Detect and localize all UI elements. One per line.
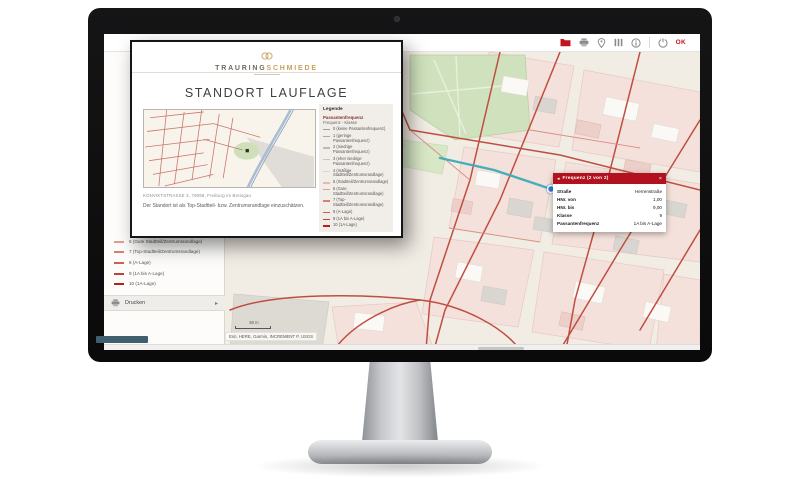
webcam-dot <box>394 16 400 22</box>
info-icon[interactable] <box>631 38 641 48</box>
legend-item: 0 (keine Passantenfrequenz) <box>323 127 389 132</box>
wedding-rings-icon <box>260 52 274 60</box>
popup-row: HNr. von 1,00 <box>557 195 662 203</box>
popup-row-label: Klasse <box>557 213 572 218</box>
location-pin-icon[interactable] <box>597 38 606 48</box>
popup-row: Straße Herrenstraße <box>557 187 662 195</box>
report-map-caption: KONVIKTSTRASSE 3, 79098, Freiburg im Bre… <box>143 193 323 198</box>
legend-label: 8 (A-Lage) <box>333 210 352 215</box>
map-attribution: Esri, HERE, Garmin, INCREMENT P, USGS <box>225 332 317 341</box>
legend-swatch <box>323 171 330 172</box>
legend-item: 7 (Top-Stadtteil/Zentrumsrandlage) <box>104 247 225 258</box>
legend-swatch <box>323 200 330 201</box>
brand-name-right: SCHMIEDE <box>266 65 317 72</box>
legend-label: 9 (1A bis A-Lage) <box>333 217 364 222</box>
brand-logo: TRAURINGSCHMIEDE <box>132 47 401 75</box>
legend-label: 2 (niedrige Passantenfrequenz) <box>333 145 389 155</box>
report-legend: Legende Passantenfrequenz Frequenz - Kla… <box>319 104 393 232</box>
power-icon[interactable] <box>658 38 668 48</box>
sidebar-legend-list: 6 (Gute Stadtteil/Zentrumsrandlage) 7 (T… <box>104 236 225 290</box>
legend-label: 4 (mäßige Stadtteil/Zentrumsrandlage) <box>333 169 389 179</box>
popup-header: ◂ Frequenz (2 von 2) × <box>553 173 666 184</box>
legend-item: 5 (Stadtteil/Zentrumsrandlage) <box>323 180 389 185</box>
legend-label: 9 (1A bis A-Lage) <box>129 271 164 277</box>
legend-label: 8 (A-Lage) <box>129 260 151 266</box>
page: 50 m Esri, HERE, Garmin, INCREMENT P, US… <box>0 0 800 484</box>
legend-item: 3 (eher niedrige Passantenfrequenz) <box>323 157 389 167</box>
legend-item: 9 (1A bis A-Lage) <box>104 268 225 279</box>
legend-label: 0 (keine Passantenfrequenz) <box>333 127 385 132</box>
legend-label: 7 (Top-Stadtteil/Zentrumsrandlage) <box>129 249 200 255</box>
print-label: Drucken <box>125 300 145 306</box>
legend-item: 8 (A-Lage) <box>104 257 225 268</box>
legend-item: 10 (1A-Lage) <box>104 279 225 290</box>
scrollbar-corner <box>96 336 148 343</box>
brand-rule <box>254 74 280 75</box>
legend-swatch <box>323 182 330 183</box>
chevron-right-icon[interactable]: ▸ <box>215 300 218 307</box>
legend-title: Legende <box>323 107 389 112</box>
report-minimap <box>143 109 316 188</box>
printer-icon <box>111 299 120 307</box>
minimap-marker <box>246 149 249 152</box>
popup-row-value: Herrenstraße <box>635 189 662 194</box>
popup-row-value: 1,00 <box>653 197 662 202</box>
monitor-stand-neck <box>362 362 438 442</box>
popup-row-label: Straße <box>557 189 571 194</box>
legend-item: 9 (1A bis A-Lage) <box>323 217 389 222</box>
legend-swatch <box>323 147 330 148</box>
popup-row-value: 9 <box>659 213 662 218</box>
legend-item: 10 (1A-Lage) <box>323 223 389 228</box>
legend-swatch <box>323 212 330 213</box>
feature-popup: ◂ Frequenz (2 von 2) × Straße Herrenstra… <box>553 173 666 232</box>
layers-icon[interactable] <box>614 38 623 47</box>
legend-label: 5 (Stadtteil/Zentrumsrandlage) <box>333 180 388 185</box>
report-title: STANDORT LAUFLAGE <box>132 86 401 100</box>
legend-label: 6 (Gute Stadtteil/Zentrumsrandlage) <box>333 187 389 197</box>
popup-close-icon[interactable]: × <box>659 176 662 182</box>
popup-row-label: HNr. bis <box>557 205 574 210</box>
brand-name-left: TRAURING <box>215 65 266 72</box>
print-icon[interactable] <box>579 38 589 47</box>
legend-label: 3 (eher niedrige Passantenfrequenz) <box>333 157 389 167</box>
popup-row-value: 1A bis A-Lage <box>634 221 662 226</box>
legend-item: 7 (Top-Stadtteil/Zentrumsrandlage) <box>323 198 389 208</box>
map-scalebar: 50 m <box>232 320 276 329</box>
legend-swatch <box>114 251 124 253</box>
legend-swatch <box>323 225 330 226</box>
legend-swatch <box>323 189 330 190</box>
legend-item: 8 (A-Lage) <box>323 210 389 215</box>
legend-label: 6 (Gute Stadtteil/Zentrumsrandlage) <box>129 239 202 245</box>
scrollbar-thumb[interactable] <box>478 347 524 350</box>
popup-title: Frequenz (2 von 2) <box>563 176 659 181</box>
brand-name: TRAURINGSCHMIEDE <box>132 65 401 72</box>
horizontal-scrollbar[interactable] <box>104 344 700 350</box>
legend-label: 7 (Top-Stadtteil/Zentrumsrandlage) <box>333 198 389 208</box>
legend-item: 6 (Gute Stadtteil/Zentrumsrandlage) <box>323 187 389 197</box>
legend-label: 10 (1A-Lage) <box>333 223 357 228</box>
popup-row-label: HNr. von <box>557 197 576 202</box>
scalebar-rule <box>235 326 271 329</box>
popup-row-value: 9,00 <box>653 205 662 210</box>
legend-swatch <box>323 219 330 220</box>
legend-subgroup: Frequenz - Klasse <box>323 120 389 125</box>
report-description: Der Standort ist als Top-Stadtteil- bzw.… <box>143 203 318 209</box>
legend-label: 10 (1A-Lage) <box>129 281 156 287</box>
legend-item: 1 (geringe Passantenfrequenz) <box>323 134 389 144</box>
report-divider <box>132 72 401 73</box>
popup-row: Klasse 9 <box>557 212 662 220</box>
ok-button[interactable]: OK <box>676 39 686 46</box>
screen: 50 m Esri, HERE, Garmin, INCREMENT P, US… <box>104 34 700 350</box>
legend-swatch <box>323 159 330 160</box>
report-overlay: TRAURINGSCHMIEDE STANDORT LAUFLAGE <box>130 40 403 238</box>
legend-swatch <box>114 273 124 275</box>
popup-row: Passantenfrequenz 1A bis A-Lage <box>557 220 662 228</box>
monitor-shadow <box>246 454 554 478</box>
folder-icon[interactable] <box>560 38 571 47</box>
print-button[interactable]: Drucken ▸ <box>104 295 225 311</box>
legend-swatch <box>114 262 124 264</box>
monitor-bezel: 50 m Esri, HERE, Garmin, INCREMENT P, US… <box>88 8 712 362</box>
popup-body: Straße Herrenstraße HNr. von 1,00 HNr. b… <box>553 184 666 232</box>
scalebar-label: 50 m <box>232 320 276 325</box>
legend-swatch <box>114 241 124 243</box>
toolbar-divider <box>649 37 650 48</box>
popup-row-label: Passantenfrequenz <box>557 221 599 226</box>
legend-item: 4 (mäßige Stadtteil/Zentrumsrandlage) <box>323 169 389 179</box>
legend-item: 2 (niedrige Passantenfrequenz) <box>323 145 389 155</box>
legend-swatch <box>323 136 330 137</box>
popup-row: HNr. bis 9,00 <box>557 203 662 211</box>
legend-swatch <box>323 129 330 130</box>
popup-back-icon[interactable]: ◂ <box>557 176 560 182</box>
legend-label: 1 (geringe Passantenfrequenz) <box>333 134 389 144</box>
legend-swatch <box>114 283 124 285</box>
